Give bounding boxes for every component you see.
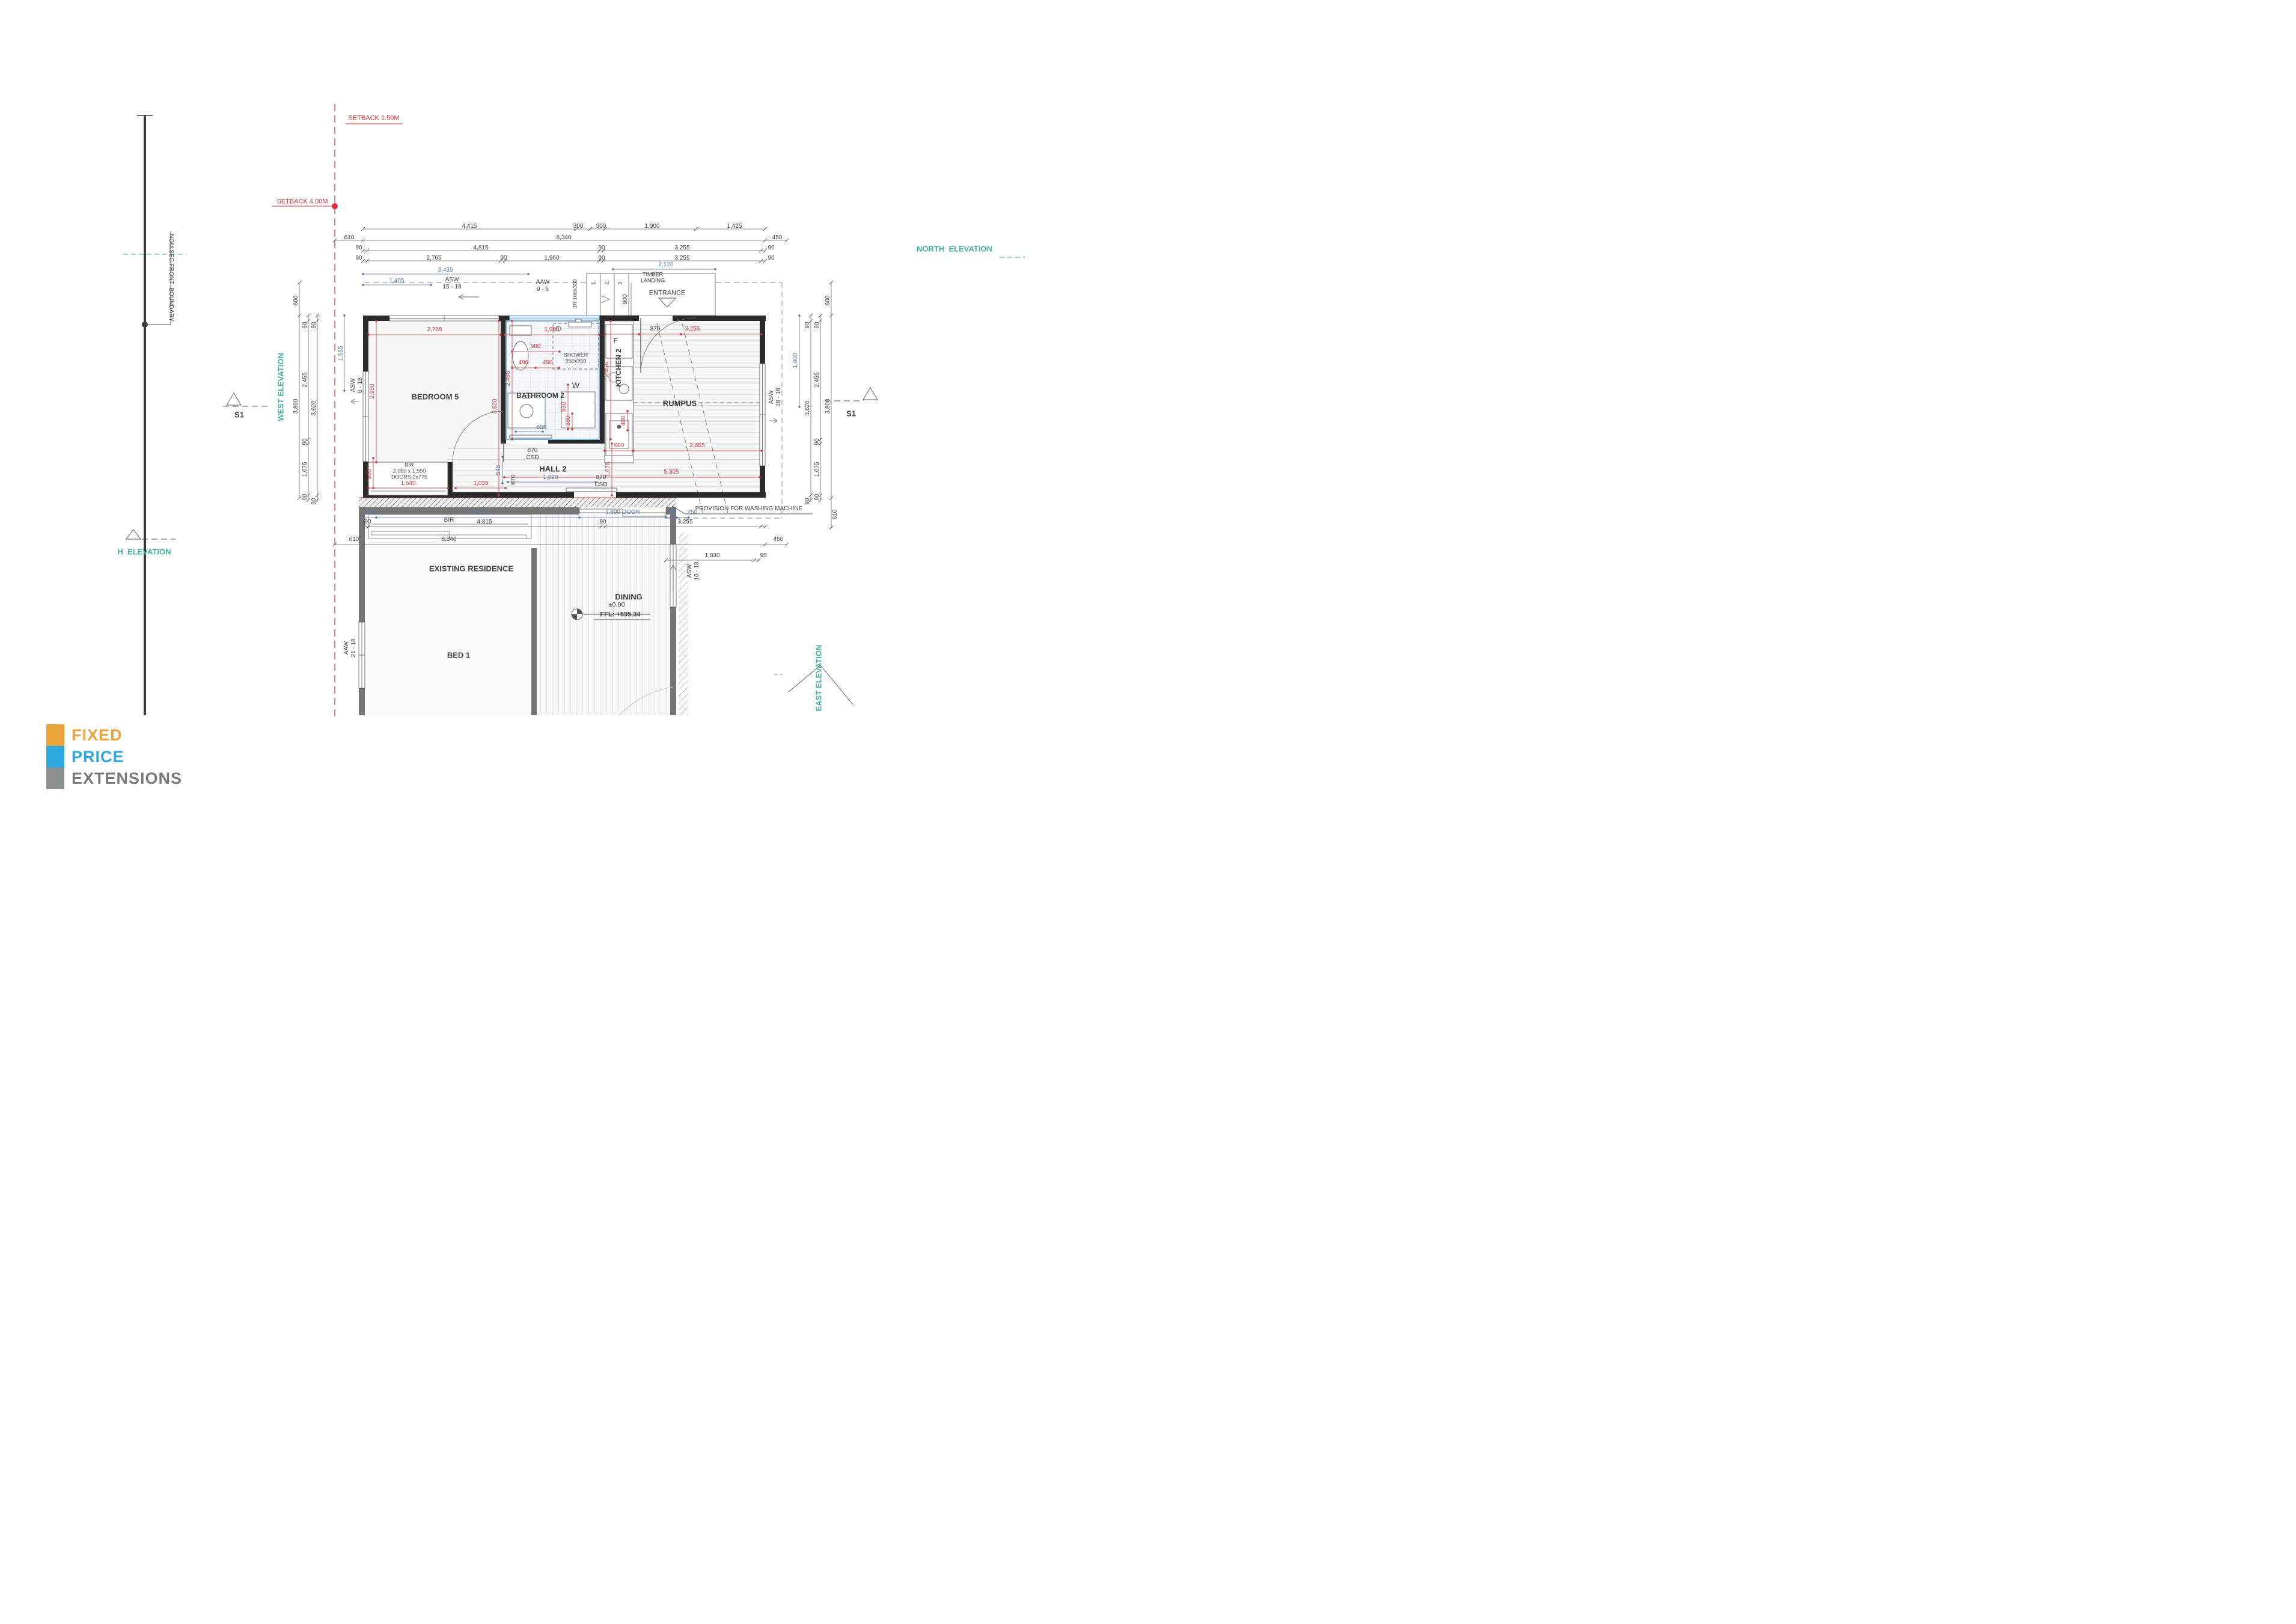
dim-label-490: 490 xyxy=(519,360,529,366)
dim-label-asw: ASW xyxy=(445,277,459,283)
dim-label-10-18: 10 - 18 xyxy=(694,561,700,580)
dim-label-250: 250 xyxy=(365,510,376,516)
dim-label-600: 600 xyxy=(825,296,831,306)
dim-label-1-830: 1,830 xyxy=(704,553,719,559)
dim-label-3-800: 3,800 xyxy=(293,398,299,414)
dim-label-asw: ASW xyxy=(769,391,775,404)
dim-label-1-900: 1,900 xyxy=(793,353,799,368)
dim-label-1-405: 1,405 xyxy=(389,278,404,284)
dim-label-90: 90 xyxy=(768,245,774,251)
dim-label-3r-166x300: 3R 166x300 xyxy=(573,279,578,309)
room-label-bedroom5: BEDROOM 5 xyxy=(412,393,459,401)
room-label-hall2: HALL 2 xyxy=(539,465,566,473)
dim-label-3-435: 3,435 xyxy=(438,267,453,273)
logo-square-orange xyxy=(46,724,64,746)
dim-label-1-425: 1,425 xyxy=(727,224,742,230)
dim-label-1-: 1. xyxy=(591,280,597,285)
room-label-rumpus: RUMPUS xyxy=(663,400,697,408)
dim-label-610: 610 xyxy=(832,510,838,520)
dim-label-230: 230 xyxy=(667,510,677,516)
dim-label-2-930: 2,930 xyxy=(370,383,376,398)
dim-label-2-455: 2,455 xyxy=(505,371,511,386)
dim-label-90: 90 xyxy=(760,553,766,559)
logo-bars-icon xyxy=(46,724,64,789)
dim-label-1-800-door: 1,800 DOOR xyxy=(605,510,640,516)
north-elevation-label: NORTH ELEVATION xyxy=(917,245,992,253)
dim-label-490: 490 xyxy=(543,360,553,366)
dim-label-450: 450 xyxy=(774,537,784,543)
dim-label-1-075: 1,075 xyxy=(605,462,611,477)
dim-label-18-18: 18 - 18 xyxy=(776,388,782,406)
dim-label-870: 870 xyxy=(511,475,517,485)
dim-label-4-415: 4,415 xyxy=(462,224,477,230)
floor-plan-sheet: 4,4153003001,9001,4256108,340450904,8159… xyxy=(0,0,1148,812)
dim-label-21-18: 21 - 18 xyxy=(351,638,357,657)
dim-label-15-18: 15 - 18 xyxy=(442,284,461,290)
dim-label-870: 870 xyxy=(650,326,661,332)
dim-label-3-620: 3,620 xyxy=(492,398,498,414)
fridge-symbol-label: F xyxy=(614,338,618,345)
east-elevation-label: EAST ELEVATION xyxy=(815,645,823,712)
dim-label-landing: LANDING xyxy=(641,278,665,284)
datum-level: ±0.00 xyxy=(608,602,624,609)
dim-label-5-305: 5,305 xyxy=(664,469,679,475)
dim-label-entrance: ENTRANCE xyxy=(649,290,686,297)
dim-label-8-340: 8,340 xyxy=(556,235,571,241)
dim-label-1-960: 1,960 xyxy=(544,327,559,333)
room-label-dining: DINING xyxy=(615,593,643,601)
dim-label-1-075: 1,075 xyxy=(302,462,308,477)
dim-label-3-: 3. xyxy=(618,280,623,285)
dim-label-90: 90 xyxy=(805,498,811,504)
section-marker-s1-left: S1 xyxy=(234,411,244,419)
dim-label-2-455: 2,455 xyxy=(302,372,308,387)
dim-label-90: 90 xyxy=(355,245,362,251)
logo-square-blue xyxy=(46,746,64,768)
dim-label-aaw: AAW xyxy=(344,641,350,655)
dim-label-8-340: 8,340 xyxy=(441,537,456,543)
dim-label-timber: TIMBER xyxy=(643,272,663,278)
dim-label-300: 300 xyxy=(573,224,584,230)
brand-logo: FIXED PRICE EXTENSIONS xyxy=(46,724,182,790)
dim-label-90: 90 xyxy=(355,255,362,261)
boundary-label: NOM.SEC.FRONT BOUNDARY xyxy=(168,234,174,322)
dim-label-aaw: AAW xyxy=(536,279,549,285)
dim-label-950x950: 950x950 xyxy=(566,359,587,364)
dim-label-doors-2x775: DOORS:2x775 xyxy=(391,475,427,480)
dim-label-2-765: 2,765 xyxy=(426,255,441,261)
dim-label-930: 930 xyxy=(561,402,567,412)
dim-label-90: 90 xyxy=(814,322,820,328)
dim-label-2-455: 2,455 xyxy=(814,372,820,387)
dim-label-1-555: 1,555 xyxy=(338,346,344,361)
dim-label-2-655: 2,655 xyxy=(689,443,704,449)
dim-label-610: 610 xyxy=(349,537,359,543)
setback-1-50-label: SETBACK 1.50M xyxy=(349,115,400,122)
dim-label-900: 900 xyxy=(623,295,629,305)
dim-label-4-815: 4,815 xyxy=(477,519,492,525)
dim-label-90: 90 xyxy=(364,519,371,525)
dim-label-9-6: 9 - 6 xyxy=(537,287,549,293)
dim-label-90: 90 xyxy=(302,493,308,500)
dim-label-330: 330 xyxy=(566,416,572,426)
dim-label-1-820: 1,820 xyxy=(543,475,558,481)
room-label-existing-residence: EXISTING RESIDENCE xyxy=(429,565,513,573)
dim-label-90: 90 xyxy=(302,438,308,445)
dim-label-90: 90 xyxy=(302,322,308,328)
dim-label-asw: ASW xyxy=(350,379,356,392)
dim-label-600: 600 xyxy=(367,469,373,480)
washing-machine-note: PROVISION FOR WASHING MACHINE xyxy=(695,506,803,512)
dim-label-90: 90 xyxy=(599,519,606,525)
dim-label-870: 870 xyxy=(528,448,538,454)
dim-label-300: 300 xyxy=(596,224,606,230)
room-label-bathroom2: BATHROOM 2 xyxy=(516,392,564,399)
section-marker-s1-right: S1 xyxy=(846,410,856,418)
dim-label-980: 980 xyxy=(531,344,541,350)
dim-label-600: 600 xyxy=(614,443,624,449)
dim-label-90: 90 xyxy=(768,255,774,261)
dim-label-2-060-x-1-550: 2,060 x 1,550 xyxy=(393,469,426,474)
ffl-level: FFL: +595.34 xyxy=(600,612,641,618)
dim-label-90: 90 xyxy=(805,322,811,328)
dim-label-610: 610 xyxy=(344,235,355,241)
dim-label-6-18: 6 - 18 xyxy=(358,377,364,393)
south-elevation-label: H ELEVATION xyxy=(117,548,171,556)
dim-label-csd: CSD xyxy=(526,455,539,461)
dim-label-3-620: 3,620 xyxy=(805,400,811,415)
dim-label-90: 90 xyxy=(598,255,605,261)
dim-label-90: 90 xyxy=(814,438,820,445)
annotation-layer: 4,4153003001,9001,4256108,340450904,8159… xyxy=(0,0,1148,812)
setback-4-00-label: SETBACK 4.00M xyxy=(277,199,328,206)
dim-label-bir: BIR xyxy=(444,517,454,524)
dim-label-90: 90 xyxy=(814,493,820,500)
dim-label-450: 450 xyxy=(772,235,783,241)
room-label-kitchen2: KITCHEN 2 xyxy=(615,349,622,386)
dim-label-90: 90 xyxy=(598,245,605,251)
dim-label-1-960: 1,960 xyxy=(544,255,559,261)
dim-label-3-255: 3,255 xyxy=(674,245,689,251)
dim-label-2-: 2. xyxy=(605,280,610,285)
room-label-bed1: BED 1 xyxy=(447,652,470,659)
dim-label-90: 90 xyxy=(311,322,317,328)
logo-square-gray xyxy=(46,768,64,789)
dim-label-600: 600 xyxy=(293,296,299,306)
dim-label-1-900: 1,900 xyxy=(644,224,659,230)
dim-label-400: 400 xyxy=(621,416,627,426)
dim-label-90: 90 xyxy=(311,498,317,504)
dim-label-asw: ASW xyxy=(687,564,693,578)
dim-label-4-815: 4,815 xyxy=(473,245,488,251)
dim-label-1-075: 1,075 xyxy=(814,462,820,477)
west-elevation-label: WEST ELEVATION xyxy=(277,353,285,421)
dim-label-3-255: 3,255 xyxy=(685,326,700,332)
dim-label-2-455: 2,455 xyxy=(604,362,610,377)
dim-label-3-255: 3,255 xyxy=(677,519,692,525)
dim-label-90: 90 xyxy=(500,255,507,261)
logo-word-fixed: FIXED xyxy=(72,724,182,746)
dim-label-4-210: 4,210 xyxy=(470,510,485,516)
dim-label-2-120: 2,120 xyxy=(658,262,673,268)
dim-label-555: 555 xyxy=(537,425,547,431)
dim-label-shower: SHOWER xyxy=(564,353,588,358)
dim-label-3-255: 3,255 xyxy=(674,255,689,261)
dim-label-csd: CSD xyxy=(594,482,607,488)
dim-label-545: 545 xyxy=(496,465,502,475)
dim-label-3-620: 3,620 xyxy=(311,400,317,415)
dim-label-1-640: 1,640 xyxy=(400,481,415,487)
dim-label-3-800: 3,800 xyxy=(825,398,831,414)
logo-word-extensions: EXTENSIONS xyxy=(72,768,182,789)
dim-label-bir: BIR xyxy=(405,463,414,468)
dim-label-1-035: 1,035 xyxy=(473,481,488,487)
logo-word-price: PRICE xyxy=(72,746,182,768)
dim-label-2-765: 2,765 xyxy=(427,327,442,333)
washer-symbol-label: W xyxy=(572,382,579,389)
